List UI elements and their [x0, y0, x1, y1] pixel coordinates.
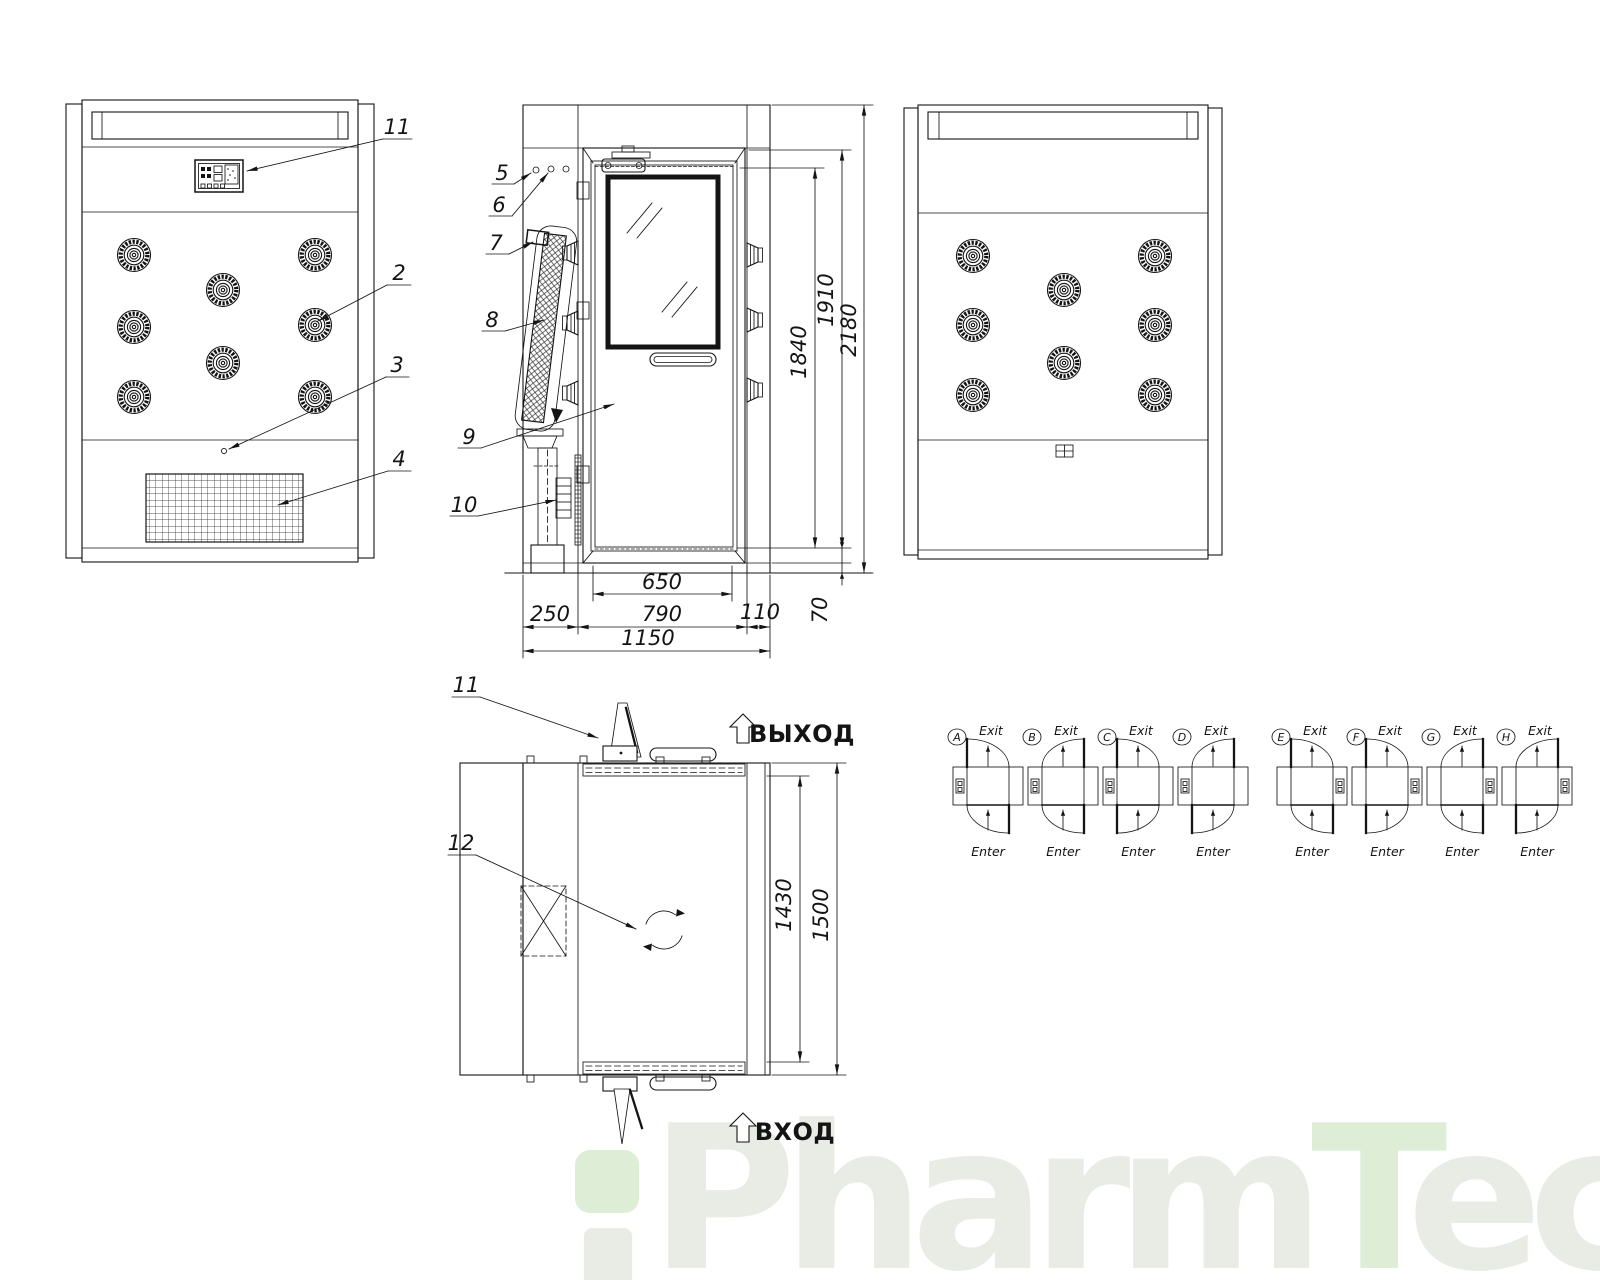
variant-enter-label: Enter: [971, 844, 1005, 859]
variant-exit-label: Exit: [1378, 723, 1403, 738]
variant-enter-label: Enter: [1520, 844, 1554, 859]
dim-250: 250: [530, 602, 570, 626]
exit-direction-label: ВЫХОД: [749, 720, 855, 748]
dim-70: 70: [808, 597, 832, 624]
variant-enter-label: Enter: [1046, 844, 1080, 859]
variant-letter: C: [1103, 731, 1111, 744]
variant-enter-label: Enter: [1121, 844, 1155, 859]
drawing-sheet: PharmTech: [0, 0, 1600, 1280]
variant-exit-label: Exit: [1204, 723, 1229, 738]
callout-10-label: 10: [451, 493, 478, 517]
variant-exit-label: Exit: [979, 723, 1004, 738]
watermark-ech: ech: [1407, 1083, 1600, 1280]
callout-5-label: 5: [495, 161, 508, 185]
variant-exit-label: Exit: [1528, 723, 1553, 738]
variant-exit-label: Exit: [1129, 723, 1154, 738]
variant-exit-label: Exit: [1054, 723, 1079, 738]
variant-enter-label: Enter: [1445, 844, 1479, 859]
dim-1840: 1840: [787, 325, 811, 378]
variant-exit-label: Exit: [1453, 723, 1478, 738]
dim-110: 110: [740, 600, 780, 624]
callout-plan-12-label: 12: [448, 831, 475, 855]
dim-650: 650: [642, 570, 682, 594]
variant-enter-label: Enter: [1196, 844, 1230, 859]
dim-1910: 1910: [814, 273, 838, 326]
callout-3-label: 3: [390, 353, 403, 377]
air-shower-drawing: PharmTech: [0, 0, 1600, 1280]
dim-1500: 1500: [809, 888, 833, 941]
variant-letter: G: [1427, 731, 1436, 744]
variant-letter: B: [1028, 731, 1036, 744]
callout-9-label: 9: [462, 425, 475, 449]
watermark-i-stem: [584, 1228, 632, 1280]
variant-exit-label: Exit: [1303, 723, 1328, 738]
variant-enter-label: Enter: [1295, 844, 1329, 859]
callout-4-label: 4: [392, 447, 405, 471]
callout-6-label: 6: [492, 193, 505, 217]
dim-2180: 2180: [837, 303, 861, 356]
rear-view: [904, 105, 1222, 559]
dim-1430: 1430: [772, 878, 796, 931]
enter-flow: ВХОД: [730, 1113, 835, 1146]
callout-plan-11-label: 11: [453, 673, 480, 697]
watermark-logo: PharmTech: [575, 1083, 1600, 1280]
variant-letter: H: [1502, 731, 1510, 744]
variant-letter: F: [1353, 731, 1360, 744]
variant-letter: E: [1278, 731, 1285, 744]
variant-letter: D: [1178, 731, 1186, 744]
watermark-i-dot: [575, 1150, 639, 1213]
enter-direction-label: ВХОД: [755, 1118, 836, 1146]
exit-flow: ВЫХОД: [730, 714, 855, 748]
dim-1150: 1150: [621, 626, 674, 650]
callout-8-label: 8: [485, 308, 498, 332]
watermark-text: PharmTech: [650, 1083, 1600, 1280]
variant-enter-label: Enter: [1370, 844, 1404, 859]
callout-11-label: 11: [384, 115, 411, 139]
variant-letter: A: [952, 731, 961, 744]
return-grille: [146, 474, 303, 542]
callout-7-label: 7: [489, 231, 503, 255]
callout-2-label: 2: [392, 261, 405, 285]
watermark-pharm: Pharm: [650, 1083, 1311, 1280]
dim-790: 790: [642, 602, 682, 626]
